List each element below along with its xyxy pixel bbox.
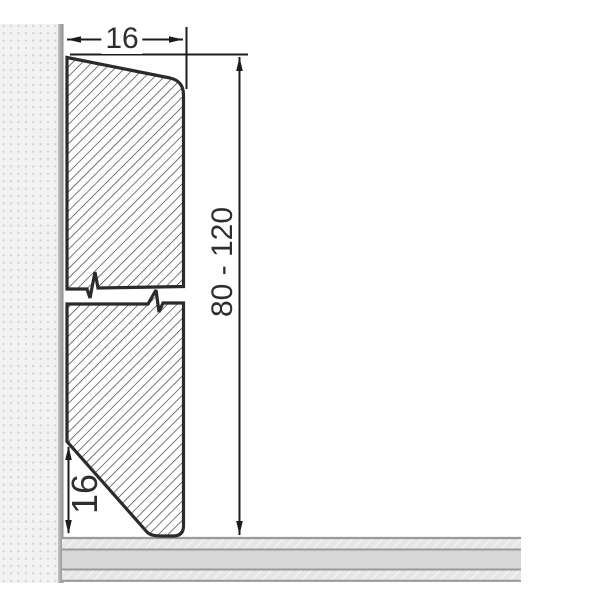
width-arrow-left-icon <box>67 36 81 43</box>
floor-middle-band <box>62 551 521 570</box>
height-dimension-label: 80 - 120 <box>208 207 238 317</box>
wall-section <box>0 24 64 583</box>
chamfer-dimension-label: 16 <box>67 474 103 514</box>
height-arrow-down-icon <box>236 521 243 535</box>
width-dimension-label: 16 <box>101 24 142 54</box>
width-arrow-right-icon <box>169 36 183 43</box>
wall-stipple-area <box>0 24 58 583</box>
skirting-profile-upper <box>67 58 184 299</box>
wall-surface-line <box>58 24 64 583</box>
floor-section <box>62 537 521 582</box>
chamfer-arrow-down-icon <box>65 520 72 534</box>
technical-drawing: 16 80 - 120 16 <box>0 0 604 604</box>
height-arrow-up-icon <box>236 57 243 71</box>
